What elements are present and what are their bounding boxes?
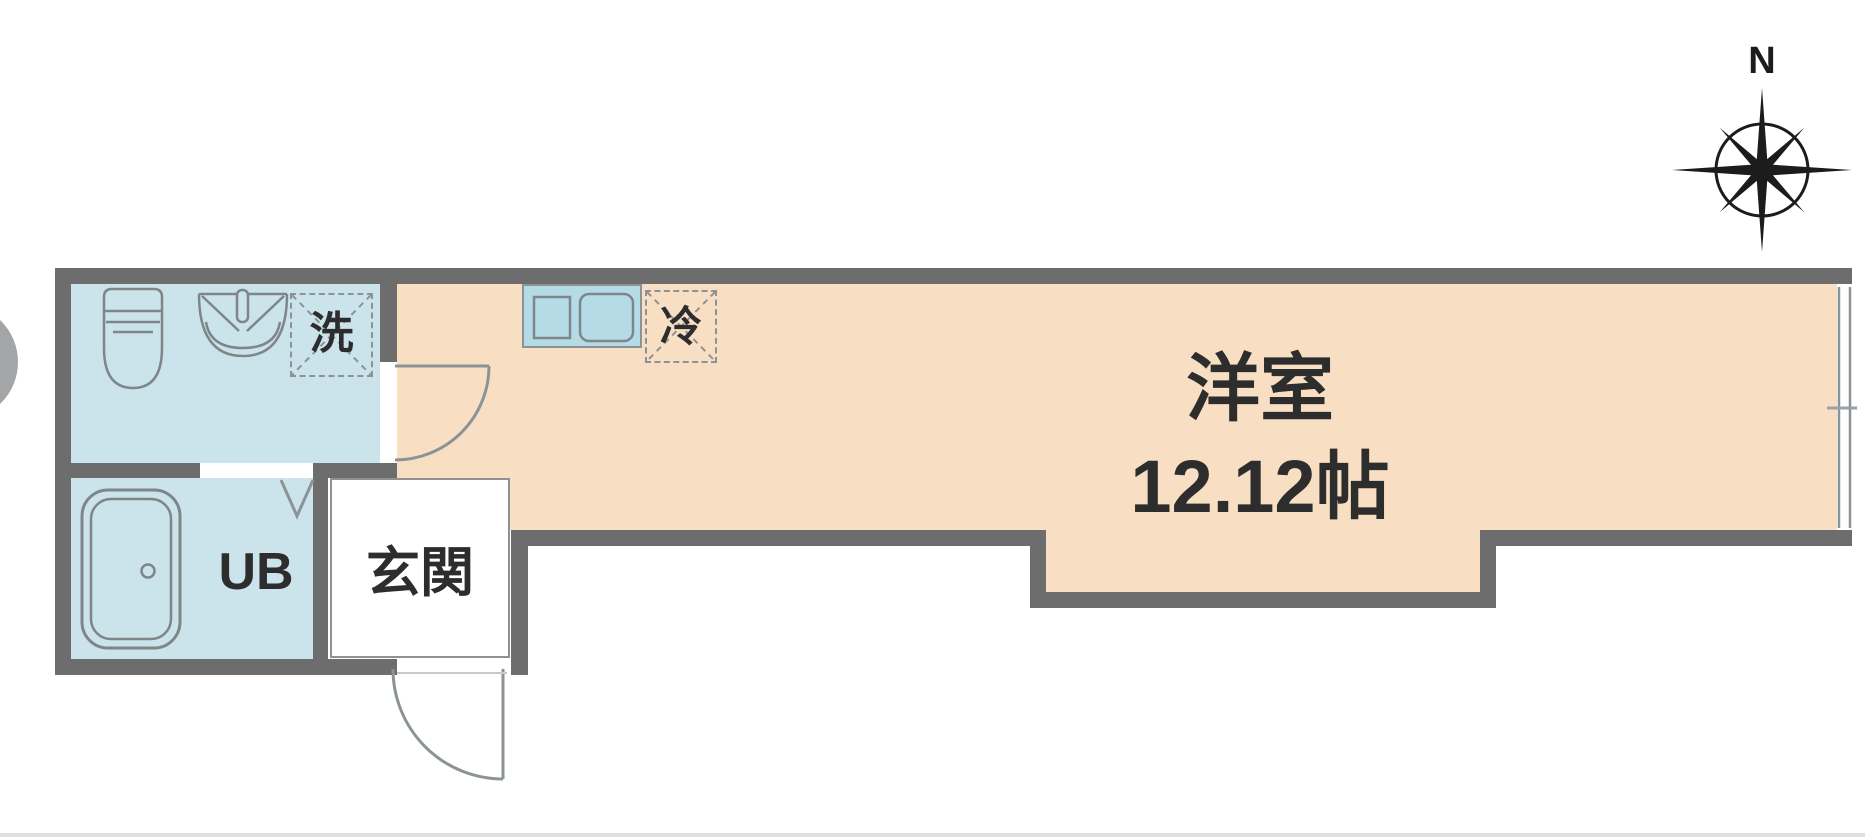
kitchen-sink-icon: [534, 294, 633, 341]
folding-door-icon: [281, 480, 313, 516]
main-room-size: 12.12帖: [1050, 438, 1470, 536]
washing-machine-label: 洗: [290, 312, 373, 356]
sink-icon: [199, 290, 287, 356]
fixtures-layer: [0, 0, 1865, 840]
refrigerator-label: 冷: [645, 306, 717, 348]
toilet-icon: [104, 289, 162, 388]
room-door-icon: [395, 366, 489, 460]
compass-north-label: N: [1738, 42, 1786, 80]
unit-bath-label: UB: [200, 546, 312, 598]
bathtub-icon: [82, 490, 180, 648]
entrance-door-icon: [393, 669, 507, 779]
compass-icon: [1672, 88, 1852, 252]
window-icon: [1827, 287, 1857, 528]
entrance-label: 玄関: [334, 546, 506, 600]
main-room-name: 洋室: [1050, 340, 1470, 438]
footer-divider: [0, 833, 1865, 837]
main-room-label: 洋室 12.12帖: [1050, 340, 1470, 536]
floor-plan: 洋室 12.12帖 UB 玄関 洗 冷 N: [0, 0, 1865, 840]
